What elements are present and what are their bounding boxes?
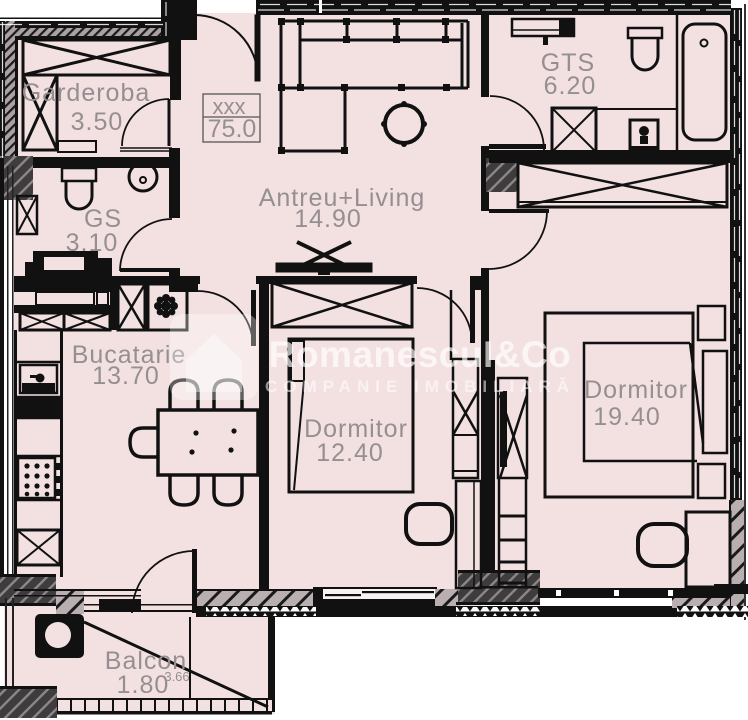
svg-text:Garderoba: Garderoba: [22, 79, 151, 107]
svg-text:6.20: 6.20: [544, 72, 597, 100]
svg-text:14.90: 14.90: [294, 205, 362, 233]
svg-text:RomanescuI&Co: RomanescuI&Co: [269, 334, 572, 375]
svg-text:1.80: 1.80: [117, 671, 170, 699]
svg-text:75.0: 75.0: [208, 115, 257, 143]
svg-text:12.40: 12.40: [316, 439, 384, 467]
svg-text:19.40: 19.40: [593, 403, 661, 431]
svg-text:3.10: 3.10: [66, 229, 119, 257]
svg-text:Dormitor: Dormitor: [584, 376, 688, 404]
svg-text:3.66: 3.66: [164, 669, 189, 684]
svg-text:3.50: 3.50: [71, 108, 124, 136]
svg-text:13.70: 13.70: [92, 362, 160, 390]
svg-text:COMPANIE IMOBILIARĂ: COMPANIE IMOBILIARĂ: [265, 377, 575, 396]
